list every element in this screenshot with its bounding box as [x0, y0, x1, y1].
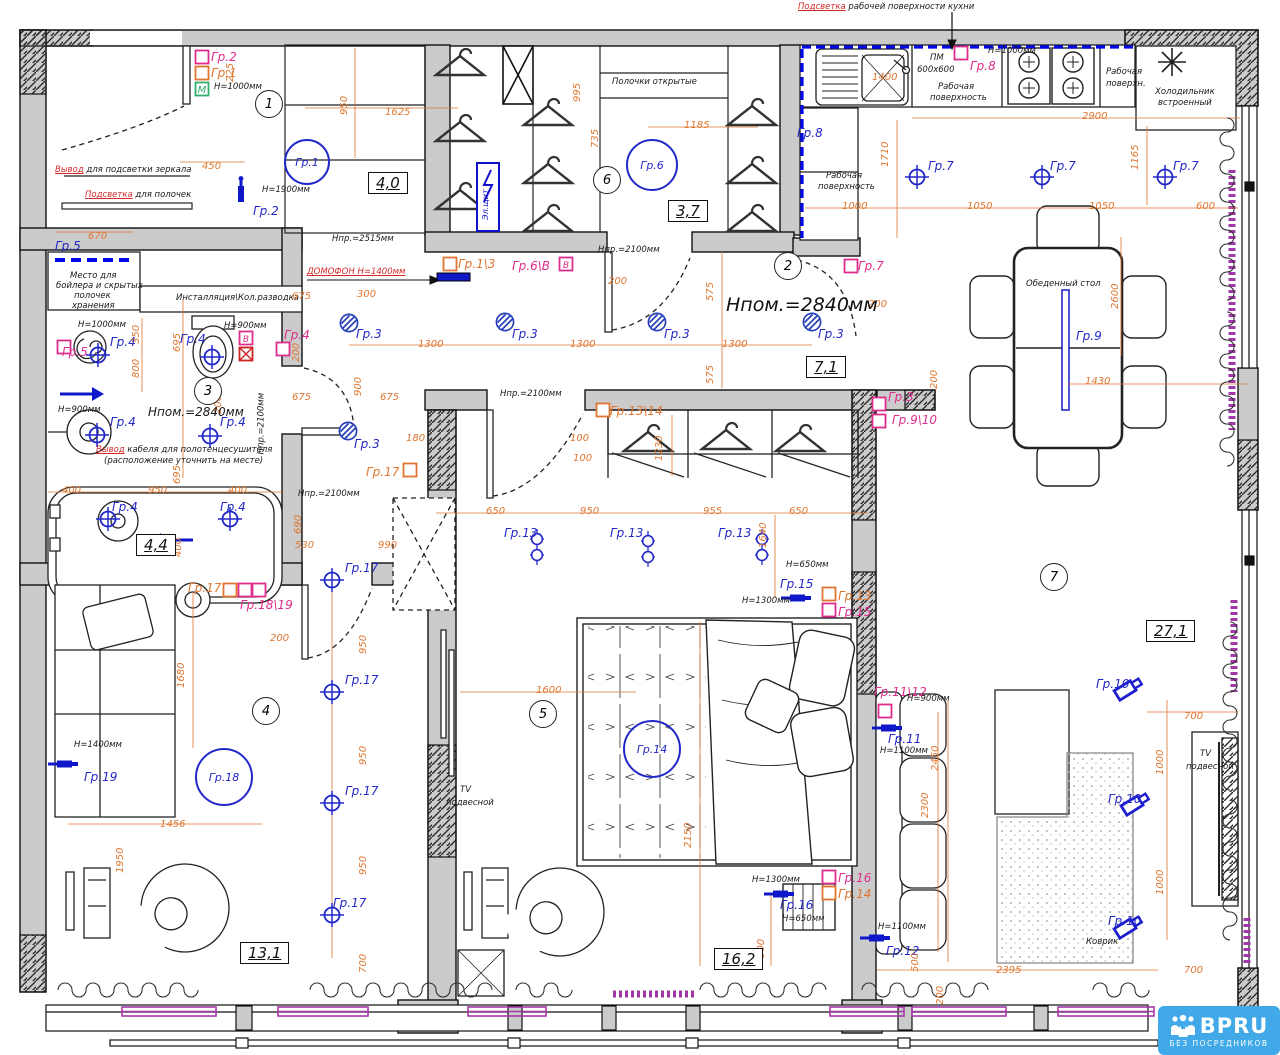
- bpru-brand-text: BPRU: [1200, 1014, 1269, 1038]
- bpru-tagline: БЕЗ ПОСРЕДНИКОВ: [1169, 1039, 1268, 1048]
- generated-lines: [0, 0, 1280, 1055]
- floor-plan: МВВ 2259501625450670Н=1000ммН=1900ммГр.2…: [0, 0, 1280, 1055]
- dimension-lines: [48, 48, 1247, 970]
- bpru-logo[interactable]: BPRU БЕЗ ПОСРЕДНИКОВ: [1158, 1006, 1280, 1055]
- radiator-symbols: [58, 118, 1237, 997]
- bpru-people-icon: [1170, 1015, 1196, 1037]
